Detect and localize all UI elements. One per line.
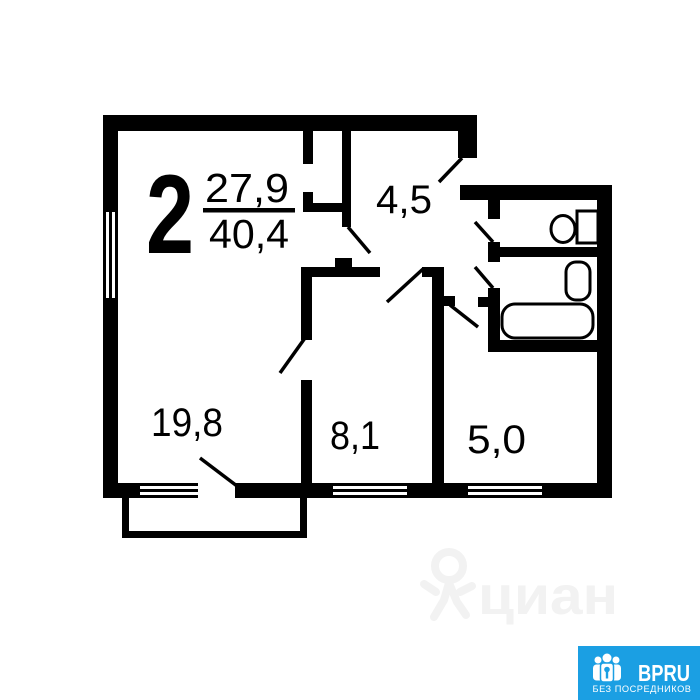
- badge-title: BPRU: [638, 660, 690, 686]
- bathtub-icon: [502, 304, 593, 338]
- door-kitchen-swing: [450, 305, 478, 327]
- floor-plan-canvas: циан: [0, 0, 700, 700]
- room3-area-label: 5,0: [467, 418, 526, 462]
- door-hall-swing: [348, 227, 370, 253]
- room2-area-label: 8,1: [330, 414, 380, 458]
- cian-watermark: циан: [424, 552, 618, 626]
- door-balcony-swing: [200, 458, 237, 486]
- window-room3-icon: [468, 483, 542, 498]
- hall-area-label: 4,5: [376, 178, 432, 222]
- sanitary-fixtures: [502, 211, 598, 338]
- balcony-outline: [122, 497, 307, 538]
- door-room2-swing: [387, 269, 423, 302]
- window-room1-icon: [140, 483, 198, 498]
- door-room1-swing: [280, 338, 305, 373]
- bpru-badge: BPRU БЕЗ ПОСРЕДНИКОВ: [578, 646, 700, 700]
- door-wc-swing: [475, 222, 493, 242]
- badge-subtitle: БЕЗ ПОСРЕДНИКОВ: [593, 684, 692, 694]
- room1-area-label: 19,8: [151, 401, 223, 445]
- door-entrance-swing: [439, 158, 462, 182]
- floor-plan-page: циан: [0, 0, 700, 700]
- cian-pin-logo-icon: [424, 552, 472, 617]
- door-bathroom-swing: [475, 267, 493, 288]
- watermark-text: циан: [478, 566, 618, 626]
- balcony-door-opening: [198, 483, 235, 498]
- window-room2-icon: [333, 483, 407, 498]
- total-area-label: 40,4: [209, 211, 289, 257]
- living-area-label: 27,9: [205, 165, 289, 211]
- toilet-tank-icon: [577, 211, 598, 243]
- sink-icon: [566, 262, 590, 300]
- people-key-icon: [593, 654, 621, 683]
- rooms-count-label: 2: [146, 152, 194, 277]
- window-left-icon: [103, 212, 118, 298]
- toilet-icon: [551, 216, 575, 243]
